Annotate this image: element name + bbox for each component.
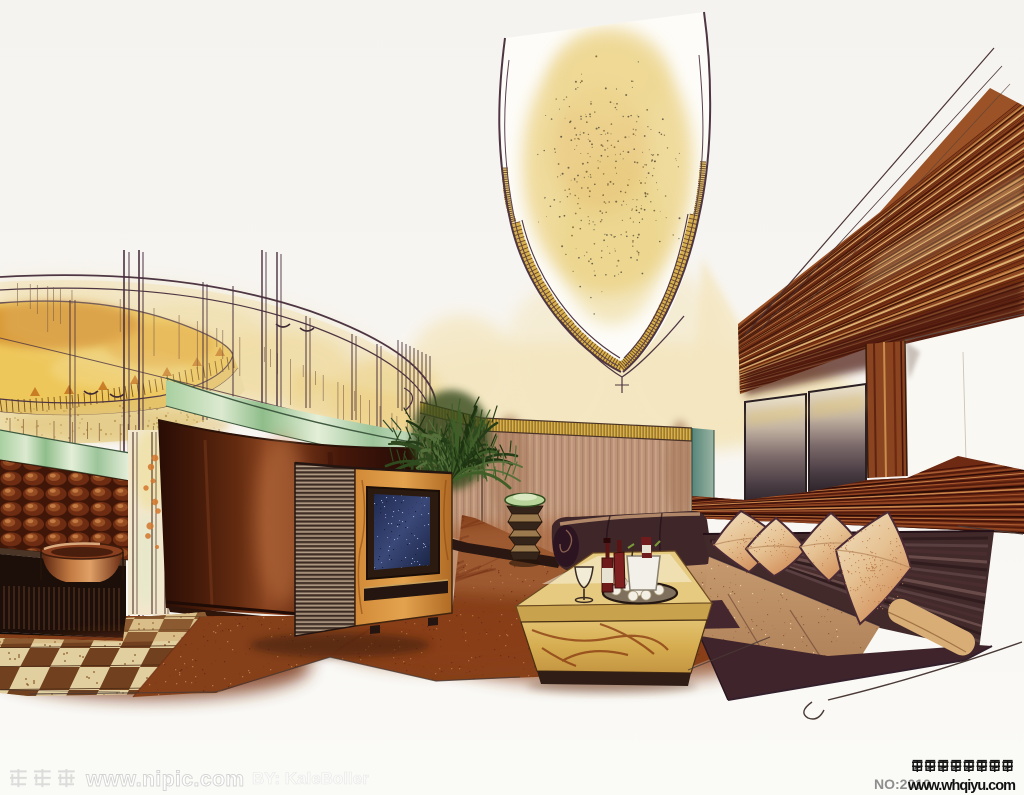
- svg-text:www.nipic.com: www.nipic.com: [85, 768, 245, 791]
- svg-text:www.whqiyu.com: www.whqiyu.com: [907, 778, 1016, 794]
- svg-text:BY: KaleBoller: BY: KaleBoller: [252, 769, 369, 788]
